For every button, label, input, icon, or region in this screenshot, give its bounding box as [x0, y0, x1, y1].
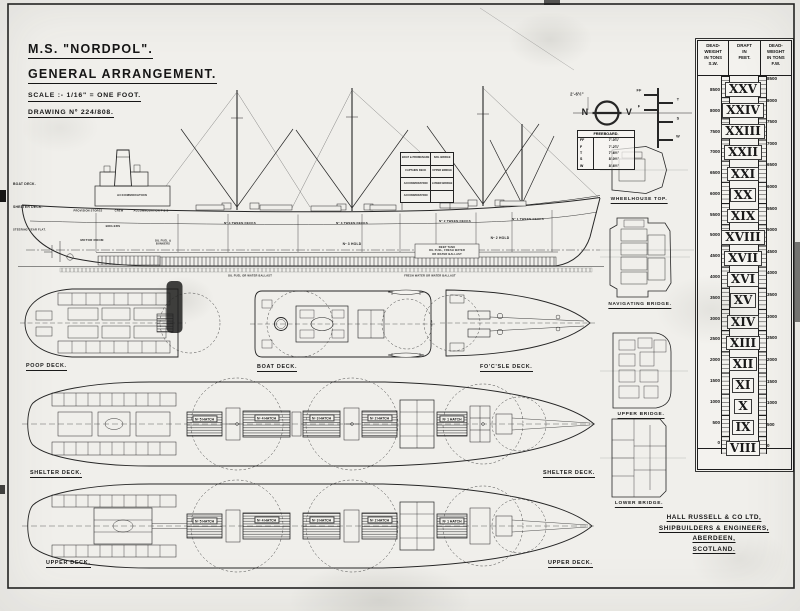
- bridge-house-level-name: [431, 191, 453, 203]
- bridge-house-level-name: NAV. BRIDGE: [431, 153, 453, 165]
- sw-value: 4500: [710, 254, 720, 259]
- profile-shelter-deck-label: SHELTER DECK.: [13, 205, 43, 209]
- builder-country: SCOTLAND.: [638, 546, 790, 553]
- draft-foot-numeral: XXIV: [722, 103, 764, 118]
- boat-deck-title: BOAT DECK.: [257, 364, 297, 372]
- sw-value: 0: [717, 441, 720, 446]
- draft-foot-numeral: XXV: [725, 82, 761, 97]
- deadweight-scale-body: 8500800075007000650060005500500045004000…: [698, 76, 791, 468]
- fw-value: 3500: [767, 293, 777, 298]
- deadweight-scale-headers: DEAD- WEIGHT IN TONS S.W. DRAFT IN FEET.…: [698, 41, 791, 76]
- fw-value: 7000: [767, 142, 777, 147]
- sw-value: 1000: [710, 400, 720, 405]
- profile-deep-tank-label: DEEP TANK OIL FUEL, FRESH WATER OR WATER…: [429, 246, 465, 256]
- fw-value: 8500: [767, 77, 777, 82]
- sw-value: 500: [712, 421, 720, 426]
- scan-edge-mark: [0, 190, 6, 202]
- freeboard-rows: FF 7'-0¾" F 7'-2¾" T 7'-6½" S 8'-0½": [578, 138, 634, 169]
- loadline-letter-n: N: [582, 107, 589, 119]
- sw-value: 6000: [710, 192, 720, 197]
- upper-deck-title-left: UPPER DECK.: [46, 560, 91, 568]
- bridge-house-level-name: UPPER BRIDGE: [431, 166, 453, 178]
- drawing-number: DRAWING Nº 224/808.: [28, 109, 114, 119]
- draft-foot-numeral: XX: [730, 188, 757, 203]
- profile-crew-label: CREW: [115, 209, 124, 212]
- sw-value: 8500: [710, 88, 720, 93]
- profile-boat-deck-label: BOAT DECK.: [13, 182, 36, 186]
- hatch-label: Nº 2 HATCH: [367, 516, 392, 523]
- header-sw: DEAD- WEIGHT IN TONS S.W.: [698, 41, 728, 75]
- hatch-label: Nº 4 HATCH: [254, 414, 279, 421]
- header-fw: DEAD- WEIGHT IN TONS F.W.: [760, 41, 791, 75]
- scan-edge-mark: [544, 0, 560, 5]
- loadline-letter-v: V: [626, 107, 632, 119]
- profile-tween1-label: Nº 1 TWEEN DECKS: [512, 218, 544, 222]
- draft-foot-numeral: XXIII: [721, 124, 764, 139]
- sw-value: 3000: [710, 317, 720, 322]
- fw-value: 1000: [767, 401, 777, 406]
- fw-value: 5000: [767, 228, 777, 233]
- bridge-house-elevation: BOAT & PROMENADE NAV. BRIDGE CAPTAINS DE…: [400, 152, 454, 203]
- loadline-mark-f: F: [638, 105, 641, 110]
- sw-value: 7000: [710, 150, 720, 155]
- upper-deck-plan: [22, 480, 594, 572]
- shelter-deck-plan: [22, 378, 596, 470]
- upper-deck-title-right: UPPER DECK.: [548, 560, 593, 568]
- fw-value: 7500: [767, 120, 777, 125]
- hatch-label: Nº 3 HATCH: [309, 414, 334, 421]
- profile-steering-flat-label: STEERING GEAR FLAT.: [13, 229, 46, 232]
- sw-value: 3500: [710, 296, 720, 301]
- shelter-deck-title-left: SHELTER DECK.: [30, 470, 82, 478]
- profile-oil-fuel-label: OIL FUEL & BUNKERS: [155, 240, 171, 247]
- freeboard-dimension: 2'-6½": [570, 91, 584, 96]
- draft-foot-numeral: XIX: [727, 209, 759, 224]
- bridge-house-deck-name: CAPTAINS DECK: [401, 166, 431, 178]
- hatch-label: Nº 3 HATCH: [309, 516, 334, 523]
- loadline-mark-s: S: [677, 117, 680, 122]
- wheelhouse-top-title: WHEELHOUSE TOP.: [611, 197, 668, 204]
- lower-bridge-title: LOWER BRIDGE.: [615, 501, 663, 508]
- funnel-detail: [167, 281, 183, 333]
- bridge-house-row: ACCOMMODATION: [401, 190, 453, 203]
- loadline-mark-w: W: [676, 135, 680, 140]
- upper-bridge-title: UPPER BRIDGE.: [618, 412, 665, 419]
- fw-value: 8000: [767, 99, 777, 104]
- sw-values: 8500800075007000650060005500500045004000…: [700, 88, 720, 446]
- profile-db-right-label: FRESH WATER OR WATER BALLAST: [404, 274, 456, 277]
- draft-foot-numeral: XII: [729, 357, 758, 372]
- draft-foot-numeral: IX: [732, 420, 755, 435]
- boat-deck-plan: [250, 290, 437, 357]
- fw-value: 6500: [767, 163, 777, 168]
- drawing-title: GENERAL ARRANGEMENT.: [28, 67, 217, 84]
- hatch-label: Nº 1 HATCH: [439, 415, 464, 422]
- sw-value: 4000: [710, 275, 720, 280]
- freeboard-row: W 8'-6½": [578, 163, 634, 169]
- sw-value: 1500: [710, 379, 720, 384]
- hatch-label: Nº 1 HATCH: [439, 517, 464, 524]
- loadline-mark-ff: FF: [636, 89, 641, 94]
- profile-tween2-label: Nº 2 TWEEN DECKS: [439, 220, 471, 224]
- profile-tween4-label: Nº 4 TWEEN DECKS: [224, 222, 256, 226]
- drawing-sheet: M.S. "NORDPOL". GENERAL ARRANGEMENT. SCA…: [0, 0, 800, 611]
- builder-name: HALL RUSSELL & CO LTD,: [638, 514, 790, 521]
- profile-boilers-label: BOILERS: [106, 225, 121, 229]
- draft-foot-numeral: XV: [730, 293, 757, 308]
- fw-value: 4000: [767, 271, 777, 276]
- shelter-deck-title-right: SHELTER DECK.: [543, 470, 595, 478]
- fw-value: 2500: [767, 336, 777, 341]
- draft-foot-numeral: XVI: [727, 272, 759, 287]
- sw-value: 2500: [710, 337, 720, 342]
- draft-foot-numeral: XIV: [727, 315, 759, 330]
- fw-value: 2000: [767, 358, 777, 363]
- draft-foot-numeral: XVIII: [721, 230, 764, 245]
- bridge-house-row: BOAT & PROMENADE NAV. BRIDGE: [401, 153, 453, 165]
- fw-value: 3000: [767, 315, 777, 320]
- sw-value: 8000: [710, 109, 720, 114]
- bridge-house-deck-name: ACCOMMODATION: [401, 178, 431, 190]
- hatch-label: Nº 5 HATCH: [192, 415, 217, 422]
- bridge-house-row: CAPTAINS DECK UPPER BRIDGE: [401, 165, 453, 178]
- navigating-bridge-title: NAVIGATING BRIDGE.: [608, 302, 671, 309]
- draft-foot-numeral: XI: [732, 378, 755, 393]
- builder-trade: SHIPBUILDERS & ENGINEERS,: [638, 525, 790, 532]
- poop-deck-title: POOP DECK.: [26, 363, 67, 371]
- draft-foot-numeral: VIII: [726, 441, 760, 456]
- sw-value: 5500: [710, 213, 720, 218]
- fw-value: 5500: [767, 207, 777, 212]
- bridge-house-row: ACCOMMODATION LOWER BRIDGE: [401, 177, 453, 190]
- loadline-mark-t: T: [677, 98, 680, 103]
- profile-motor-room-label: MOTOR ROOM: [80, 239, 103, 243]
- scan-edge-mark: [795, 242, 800, 322]
- profile-accommodation-ps-label: ACCOMMODATION P & S: [134, 209, 169, 212]
- title-block: M.S. "NORDPOL". GENERAL ARRANGEMENT. SCA…: [28, 42, 217, 125]
- profile-hold2-label: Nº 2 HOLD: [491, 236, 510, 240]
- draft-foot-numeral: XXII: [724, 145, 762, 160]
- sw-value: 6500: [710, 171, 720, 176]
- focsle-deck-plan: [424, 290, 595, 356]
- bridge-house-deck-name: ACCOMMODATION: [401, 191, 431, 203]
- header-draft: DRAFT IN FEET.: [728, 41, 759, 75]
- freeboard-mark: W: [578, 163, 594, 169]
- focsle-deck-title: FO'C'SLE DECK.: [480, 364, 533, 372]
- fw-value: 0: [767, 444, 770, 449]
- fw-value: 1500: [767, 380, 777, 385]
- poop-deck-plan: [20, 289, 220, 357]
- profile-provision-label: PROVISION STORES: [74, 209, 103, 212]
- sw-value: 5000: [710, 233, 720, 238]
- builder-city: ABERDEEN,: [638, 535, 790, 542]
- hatch-label: Nº 4 HATCH: [254, 516, 279, 523]
- ship-name: M.S. "NORDPOL".: [28, 42, 153, 59]
- hatch-label: Nº 2 HATCH: [367, 414, 392, 421]
- freeboard-title: FREEBOARD.: [578, 131, 634, 138]
- profile-tween3-label: Nº 3 TWEEN DECKS: [336, 222, 368, 226]
- scale-note: SCALE :- 1/16" = ONE FOOT.: [28, 92, 141, 102]
- profile-hold3-label: Nº 3 HOLD: [343, 242, 362, 246]
- profile-db-left-label: OIL FUEL OR WATER BALLAST: [228, 274, 272, 277]
- freeboard-value: 8'-6½": [594, 163, 634, 169]
- draft-foot-numeral: XXI: [727, 167, 759, 182]
- draft-foot-numeral: XVII: [724, 251, 762, 266]
- hatch-label: Nº 5 HATCH: [192, 517, 217, 524]
- builder-block: HALL RUSSELL & CO LTD, SHIPBUILDERS & EN…: [638, 514, 790, 556]
- fw-value: 500: [767, 423, 775, 428]
- freeboard-table: FREEBOARD. FF 7'-0¾" F 7'-2¾" T 7'-6½": [577, 130, 635, 170]
- scan-artifacts: [167, 8, 575, 333]
- scan-edge-mark: [0, 485, 5, 494]
- bridge-house-level-name: LOWER BRIDGE: [431, 178, 453, 190]
- deadweight-scale: DEAD- WEIGHT IN TONS S.W. DRAFT IN FEET.…: [697, 40, 792, 470]
- draft-foot-numeral: XIII: [726, 336, 760, 351]
- sw-value: 2000: [710, 358, 720, 363]
- fw-value: 4500: [767, 250, 777, 255]
- bridge-house-deck-name: BOAT & PROMENADE: [401, 153, 431, 165]
- fw-value: 6000: [767, 185, 777, 190]
- fw-values: 8500800075007000650060005500500045004000…: [767, 77, 787, 449]
- sw-value: 7500: [710, 130, 720, 135]
- profile-accommodation-label: ACCOMMODATION: [117, 194, 147, 198]
- draft-foot-numeral: X: [734, 399, 751, 414]
- draft-feet-column: XXVXXIVXXIIIXXIIXXIXXXIXXVIIIXVIIXVIXVXI…: [730, 82, 756, 456]
